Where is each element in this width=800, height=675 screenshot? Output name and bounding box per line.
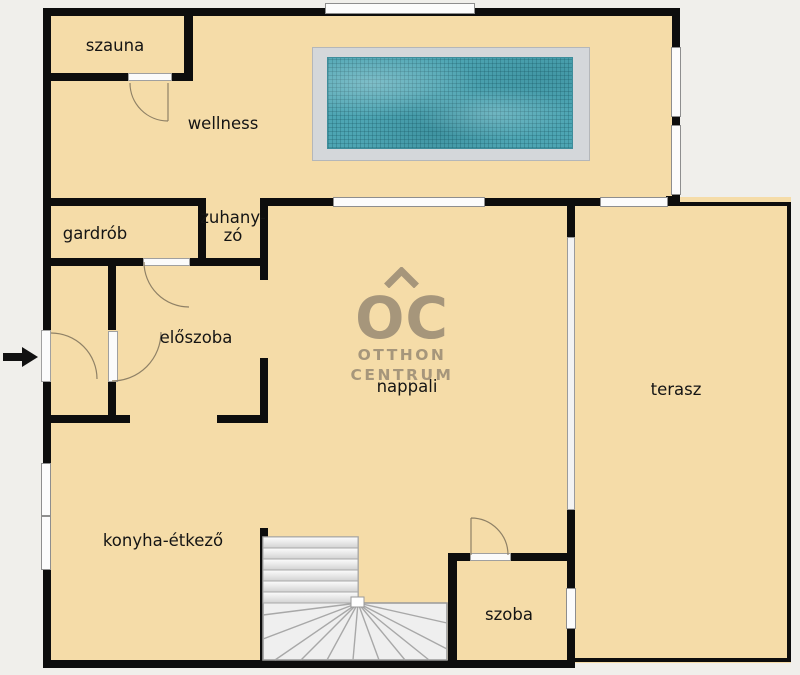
door	[143, 258, 190, 266]
room-label-wellness: wellness	[188, 115, 259, 133]
room-label-zuhanyzo: zuhany- zó	[200, 209, 266, 245]
window	[600, 197, 668, 207]
watermark-monogram: OC	[351, 292, 454, 345]
window	[671, 125, 681, 195]
wall	[672, 117, 680, 125]
room-label-gardrob: gardrób	[63, 225, 128, 243]
entrance-arrow-icon	[3, 344, 39, 370]
wall	[485, 198, 600, 206]
wall	[217, 415, 268, 423]
wall	[567, 510, 575, 588]
window	[566, 588, 576, 629]
wall	[43, 568, 51, 668]
window	[671, 47, 681, 117]
wall	[43, 8, 51, 330]
wall	[260, 358, 268, 423]
door	[108, 331, 118, 382]
wall	[567, 205, 575, 237]
wall	[171, 73, 193, 81]
room-label-nappali: nappali	[377, 378, 438, 396]
glass-door	[567, 237, 575, 510]
room-label-szauna: szauna	[86, 37, 144, 55]
wall	[108, 266, 116, 330]
wall	[184, 8, 193, 81]
staircase	[261, 535, 451, 665]
wall	[260, 198, 333, 206]
wall	[680, 202, 791, 206]
wall	[510, 553, 575, 561]
wall	[43, 415, 130, 423]
wall	[567, 628, 575, 668]
pool-water	[327, 57, 573, 149]
room-label-eloszoba: előszoba	[160, 329, 233, 347]
wall	[108, 382, 116, 415]
wall	[43, 73, 128, 81]
door	[470, 553, 511, 561]
window	[41, 516, 51, 570]
wall	[43, 198, 206, 206]
wall	[190, 258, 267, 266]
window	[333, 197, 485, 207]
room-label-terasz: terasz	[651, 381, 702, 399]
wall	[672, 8, 680, 47]
wall	[787, 202, 791, 662]
floor-plan: OC OTTHON CENTRUM szauna wellness gardró…	[0, 0, 800, 675]
window	[41, 463, 51, 516]
door	[128, 73, 172, 81]
window	[325, 3, 475, 14]
watermark-line1: OTTHON	[351, 346, 454, 364]
wall	[573, 658, 791, 662]
door	[41, 330, 51, 382]
otthon-centrum-watermark: OC OTTHON CENTRUM	[351, 267, 454, 384]
pool-deck	[312, 47, 590, 161]
wall	[43, 258, 143, 266]
room-label-konyha: konyha-étkező	[103, 532, 223, 550]
room-label-szoba: szoba	[485, 606, 533, 624]
wall	[672, 195, 680, 206]
